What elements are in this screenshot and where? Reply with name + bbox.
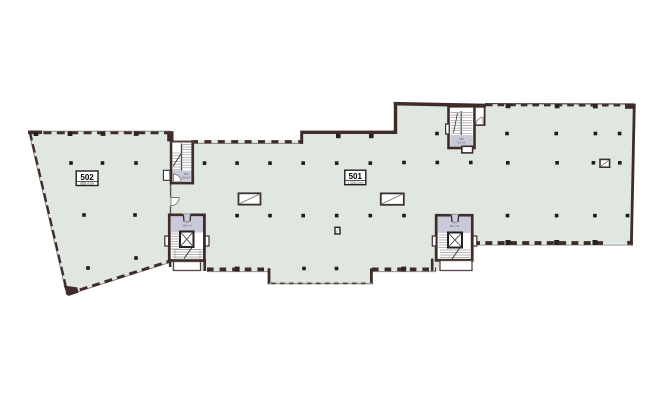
svg-text:502: 502 [80, 173, 94, 182]
svg-text:608,4 m²: 608,4 m² [80, 182, 94, 186]
svg-text:16,1 m²: 16,1 m² [450, 224, 460, 228]
svg-text:501: 501 [349, 172, 363, 181]
svg-text:1 025,0 m²: 1 025,0 m² [347, 181, 364, 185]
svg-text:16,0 m²: 16,0 m² [182, 224, 192, 228]
svg-text:8,6 m²: 8,6 m² [182, 176, 190, 180]
svg-text:9,1 m²: 9,1 m² [458, 141, 466, 145]
